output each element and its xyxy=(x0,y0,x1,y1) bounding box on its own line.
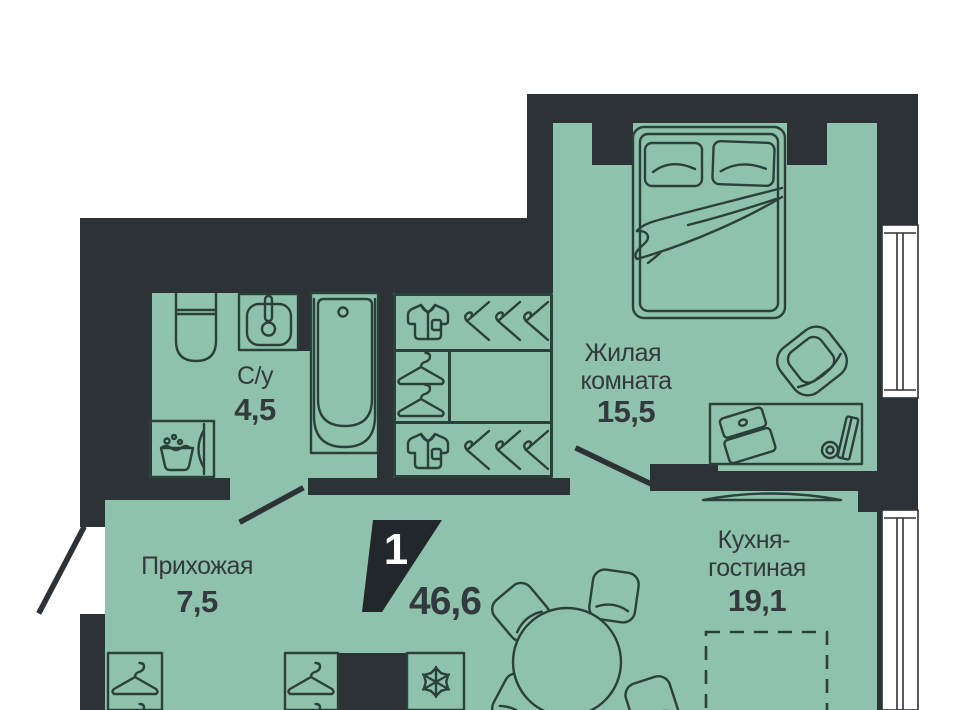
living-room-label: Жилая комната xyxy=(580,339,672,395)
wall-wardrobe-bottom xyxy=(308,478,570,495)
wall-living-kitchen-a xyxy=(650,464,718,491)
living-room-area: 15,5 xyxy=(597,394,656,429)
wall-sink-pier xyxy=(297,293,312,351)
hallway-area: 7,5 xyxy=(176,584,218,619)
bathroom-label: С/у xyxy=(237,362,274,390)
bathroom-area: 4,5 xyxy=(234,392,276,427)
floor-plan: Жилая комната 15,5 С/у 4,5 Прихожая 7,5 … xyxy=(0,0,960,710)
wall-bed-niche-right xyxy=(787,123,827,165)
rooms-count-value: 1 xyxy=(384,525,408,574)
fridge-cell xyxy=(407,653,464,710)
wall-bathroom-bottom xyxy=(103,478,230,500)
floors xyxy=(105,123,877,710)
total-area-value: 46,6 xyxy=(409,580,481,623)
closet-cell-2 xyxy=(285,653,338,710)
wardrobe-floor xyxy=(393,293,553,478)
window-kitchen xyxy=(882,510,918,710)
dining-table xyxy=(513,608,621,710)
wall-living-kitchen-b xyxy=(718,471,877,491)
kitchen-label: Кухня- гостиная xyxy=(708,526,806,582)
hallway-label: Прихожая xyxy=(141,552,253,580)
wall-window-pier xyxy=(858,491,877,512)
void-block xyxy=(338,653,407,710)
wall-bed-niche-left xyxy=(592,123,633,165)
closet-cell-1 xyxy=(108,653,162,710)
window-living xyxy=(882,225,918,398)
kitchen-area: 19,1 xyxy=(728,583,787,618)
